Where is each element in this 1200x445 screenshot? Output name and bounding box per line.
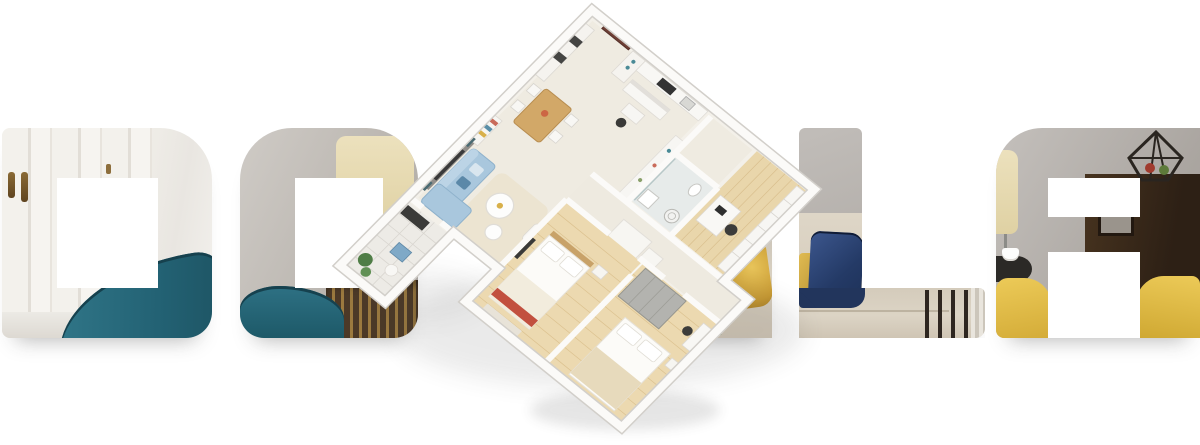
floorplan-rotated-group: living-dining [340,9,839,445]
floorplan-render: living-dining [0,0,1200,445]
hero-banner: D O (partially hidden letter) L [0,0,1200,445]
